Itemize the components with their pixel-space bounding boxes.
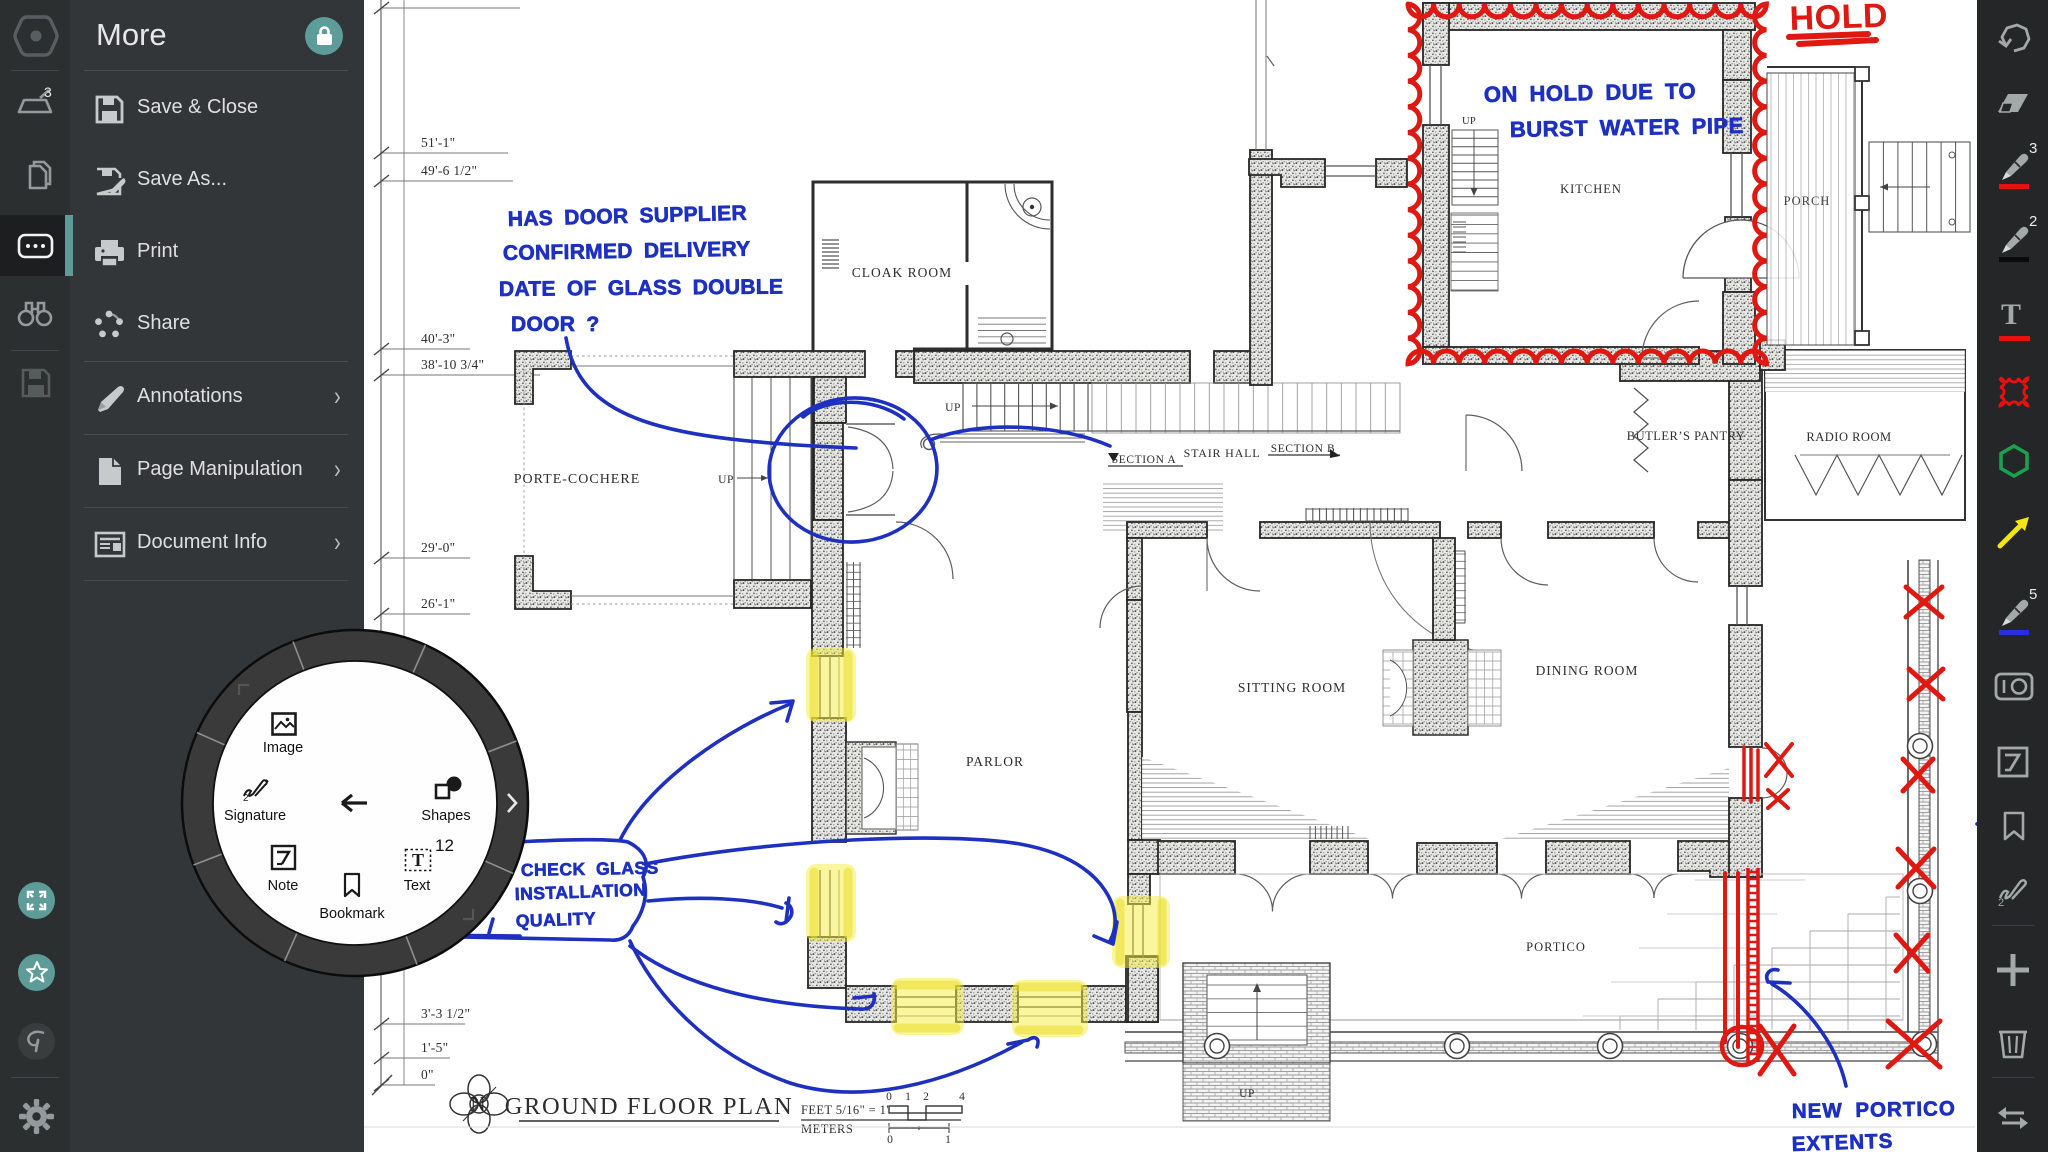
svg-text:KITCHEN: KITCHEN xyxy=(1560,182,1622,196)
svg-text:CLOAK ROOM: CLOAK ROOM xyxy=(852,265,952,280)
svg-text:29'-0": 29'-0" xyxy=(421,540,456,555)
svg-text:26'-1": 26'-1" xyxy=(421,596,456,611)
svg-text:DINING ROOM: DINING ROOM xyxy=(1536,663,1639,678)
svg-text:0": 0" xyxy=(421,1067,434,1082)
svg-text:PORCH: PORCH xyxy=(1784,194,1831,208)
svg-text:UP: UP xyxy=(1239,1088,1255,1100)
svg-text:PORTE-COCHERE: PORTE-COCHERE xyxy=(514,472,641,487)
svg-text:2: 2 xyxy=(243,793,249,802)
svg-text:SECTION B: SECTION B xyxy=(1271,443,1336,455)
svg-text:N: N xyxy=(470,1092,485,1116)
svg-text:DATE OF GLASS DOUBLE: DATE OF GLASS DOUBLE xyxy=(499,276,783,301)
svg-text:3'-3 1/2": 3'-3 1/2" xyxy=(421,1006,470,1021)
svg-text:BUTLER’S PANTRY: BUTLER’S PANTRY xyxy=(1627,429,1746,443)
svg-text:FEET 5/16" = 1': FEET 5/16" = 1' xyxy=(801,1103,889,1117)
svg-text:1: 1 xyxy=(945,1134,951,1146)
svg-text:T: T xyxy=(412,850,424,870)
svg-text:2: 2 xyxy=(1998,897,2004,908)
svg-text:EXTENTS: EXTENTS xyxy=(1791,1129,1893,1152)
svg-text:SECTION A: SECTION A xyxy=(1112,454,1177,466)
svg-text:NEW PORTICO: NEW PORTICO xyxy=(1792,1097,1956,1123)
svg-text:ON HOLD DUE TO: ON HOLD DUE TO xyxy=(1484,78,1697,107)
svg-text:49'-6 1/2": 49'-6 1/2" xyxy=(421,163,477,178)
svg-text:1'-5": 1'-5" xyxy=(421,1040,448,1055)
svg-text:CHECK GLASS: CHECK GLASS xyxy=(521,858,659,880)
svg-text:CONFIRMED DELIVERY: CONFIRMED DELIVERY xyxy=(503,238,751,265)
svg-text:PARLOR: PARLOR xyxy=(966,754,1024,769)
svg-text:51'-1": 51'-1" xyxy=(421,135,456,150)
svg-text:GROUND FLOOR PLAN: GROUND FLOOR PLAN xyxy=(505,1093,794,1120)
svg-text:METERS: METERS xyxy=(801,1122,853,1136)
svg-text:UP: UP xyxy=(945,402,961,414)
svg-text:2: 2 xyxy=(923,1091,929,1103)
svg-text:DOOR ?: DOOR ? xyxy=(511,313,599,336)
svg-text:1: 1 xyxy=(905,1091,911,1103)
svg-text:INSTALLATION: INSTALLATION xyxy=(514,879,646,904)
svg-text:0: 0 xyxy=(886,1091,892,1103)
svg-text:BURST WATER PIPE: BURST WATER PIPE xyxy=(1510,113,1744,142)
svg-text:UP: UP xyxy=(1462,116,1476,127)
svg-text:RADIO ROOM: RADIO ROOM xyxy=(1806,430,1891,444)
svg-text:UP: UP xyxy=(718,474,734,486)
svg-text:STAIR HALL: STAIR HALL xyxy=(1184,446,1261,460)
svg-text:38'-10 3/4": 38'-10 3/4" xyxy=(421,357,484,372)
svg-text:40'-3": 40'-3" xyxy=(421,331,456,346)
svg-text:0: 0 xyxy=(887,1134,893,1146)
svg-text:HAS DOOR SUPPLIER: HAS DOOR SUPPLIER xyxy=(508,202,748,231)
svg-text:4: 4 xyxy=(959,1091,965,1103)
svg-text:SITTING ROOM: SITTING ROOM xyxy=(1238,680,1346,695)
svg-text:PORTICO: PORTICO xyxy=(1526,940,1586,954)
